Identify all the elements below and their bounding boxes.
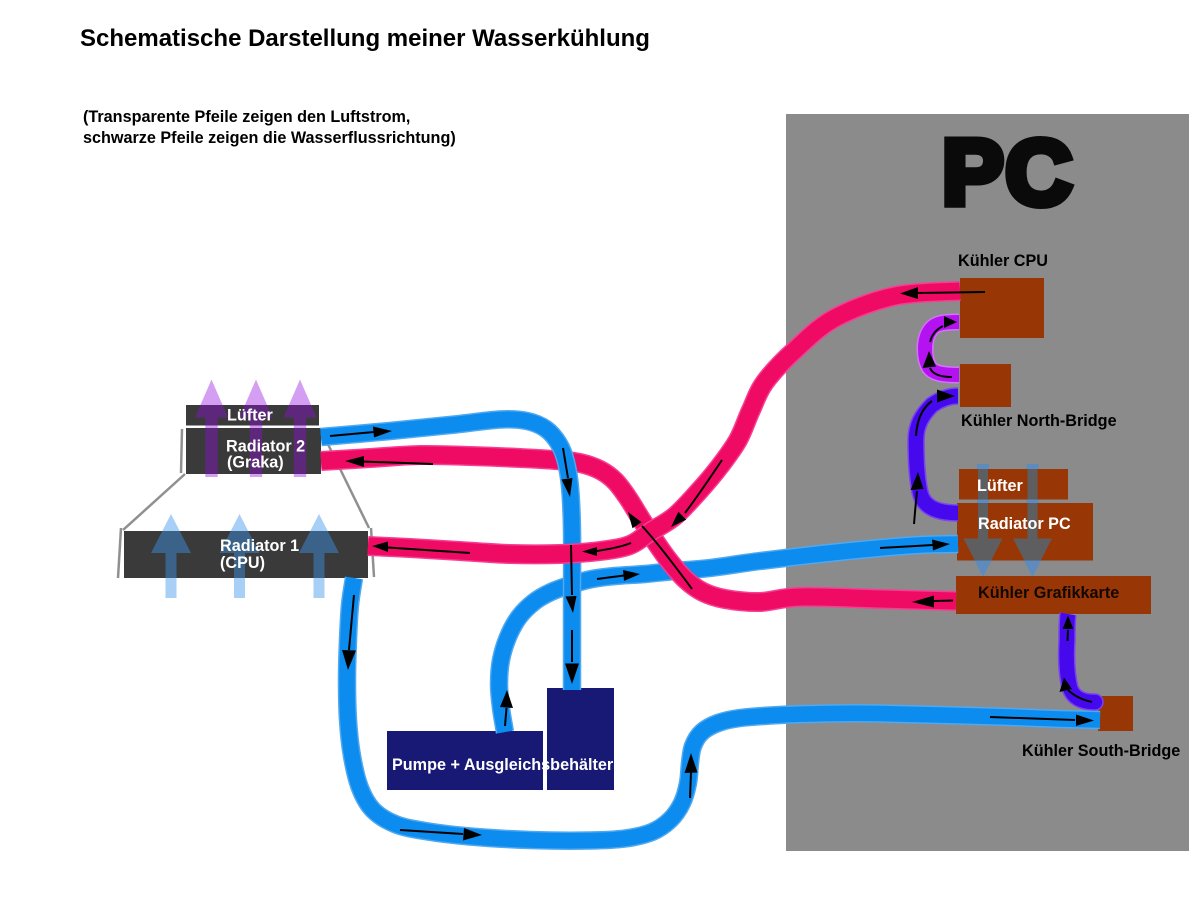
svg-text:Kühler North-Bridge: Kühler North-Bridge <box>961 412 1117 430</box>
svg-text:Radiator PC: Radiator PC <box>978 515 1071 533</box>
svg-text:Schematische Darstellung meine: Schematische Darstellung meiner Wasserkü… <box>80 25 650 52</box>
svg-text:(CPU): (CPU) <box>220 554 265 572</box>
svg-text:(Transparente Pfeile zeigen de: (Transparente Pfeile zeigen den Luftstro… <box>83 108 410 126</box>
svg-text:Kühler Grafikkarte: Kühler Grafikkarte <box>978 584 1119 602</box>
svg-text:Pumpe + Ausgleichsbehälter: Pumpe + Ausgleichsbehälter <box>392 756 614 774</box>
svg-text:(Graka): (Graka) <box>227 454 284 472</box>
svg-text:PC: PC <box>942 122 1074 224</box>
svg-text:Lüfter: Lüfter <box>977 477 1024 495</box>
svg-text:Kühler CPU: Kühler CPU <box>958 252 1048 270</box>
svg-text:Radiator 1: Radiator 1 <box>220 537 299 555</box>
svg-text:Lüfter: Lüfter <box>227 407 274 425</box>
svg-text:schwarze Pfeile zeigen die Was: schwarze Pfeile zeigen die Wasserflussri… <box>83 129 456 147</box>
svg-text:Kühler South-Bridge: Kühler South-Bridge <box>1022 742 1180 760</box>
